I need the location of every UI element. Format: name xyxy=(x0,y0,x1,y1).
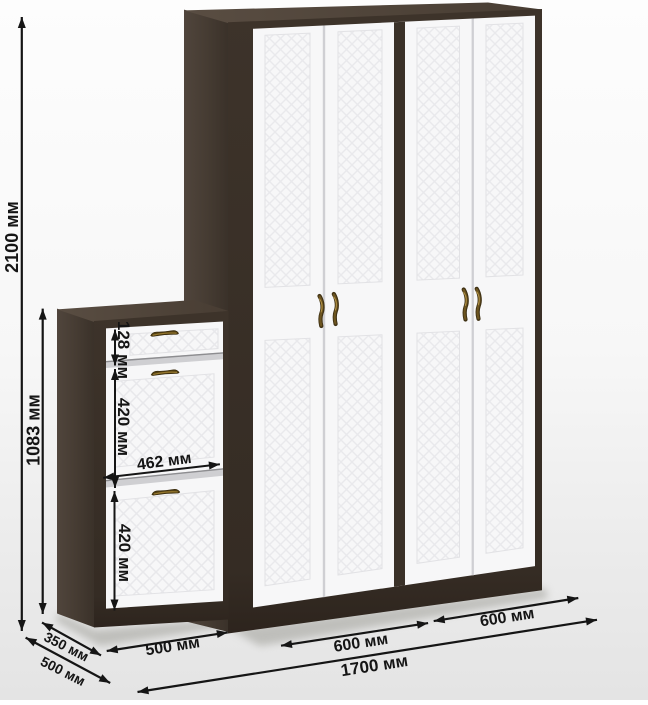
svg-text:1083 мм: 1083 мм xyxy=(24,394,44,466)
svg-text:420 мм: 420 мм xyxy=(115,524,134,582)
svg-text:2100 мм: 2100 мм xyxy=(2,201,22,273)
svg-text:420 мм: 420 мм xyxy=(114,398,133,456)
svg-text:128 мм: 128 мм xyxy=(114,321,133,379)
